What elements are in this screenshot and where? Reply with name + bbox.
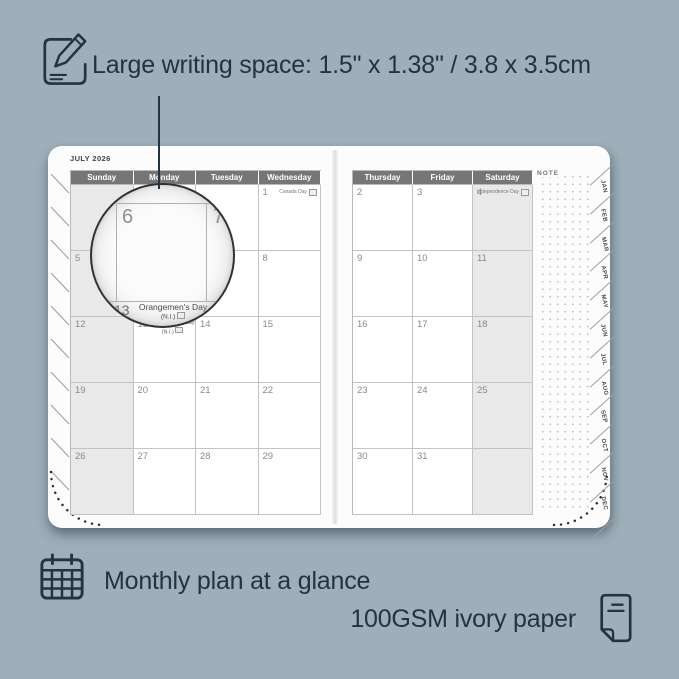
month-tab-label: OCT xyxy=(600,438,609,453)
magnified-day-7: 7 xyxy=(213,206,224,229)
day-cell: 19 xyxy=(71,383,134,449)
day-number: 26 xyxy=(75,451,86,462)
day-cell: 29 xyxy=(259,449,322,515)
month-tab-label: DEC xyxy=(600,496,609,511)
day-number: 27 xyxy=(138,451,149,462)
day-number: 2 xyxy=(357,187,362,198)
day-cell: 23 xyxy=(353,383,413,449)
day-number: 23 xyxy=(357,385,368,396)
month-title: JULY 2026 xyxy=(70,154,111,163)
day-header: Wednesday xyxy=(259,171,322,185)
day-cell: 10 xyxy=(413,251,473,317)
day-header: Tuesday xyxy=(196,171,259,185)
day-number: 5 xyxy=(75,253,80,264)
month-tab-apr: APR xyxy=(593,260,611,289)
day-cell: 1Canada Day xyxy=(259,185,322,251)
day-cell: 17 xyxy=(413,317,473,383)
month-tab-label: JAN xyxy=(599,179,608,193)
calendar-grid-right: ThursdayFridaySaturday234Independence Da… xyxy=(352,170,533,515)
book-spine-seam xyxy=(332,150,338,524)
day-number: 11 xyxy=(477,253,487,264)
day-cell: 30 xyxy=(353,449,413,515)
day-number: 15 xyxy=(263,319,274,330)
day-cell: 24 xyxy=(413,383,473,449)
day-cell: 21 xyxy=(196,383,259,449)
month-tab-label: NOV xyxy=(600,467,609,482)
magnified-day-13: 13 xyxy=(114,302,130,318)
day-cell: 2 xyxy=(353,185,413,251)
holiday-label: Independence Day xyxy=(477,189,529,196)
day-number: 28 xyxy=(200,451,211,462)
month-tab-label: APR xyxy=(600,266,609,281)
day-number: 31 xyxy=(417,451,428,462)
day-cell: 31 xyxy=(413,449,473,515)
flag-icon xyxy=(309,189,317,196)
paper-icon xyxy=(596,592,634,644)
day-cell: 8 xyxy=(259,251,322,317)
magnifier-circle: 6 7 13 Orangemen's Day (N.I.) xyxy=(90,183,235,328)
day-cell: 20 xyxy=(134,383,197,449)
day-number: 19 xyxy=(75,385,86,396)
month-tab-label: MAY xyxy=(600,294,609,309)
note-column: NOTE xyxy=(536,170,593,508)
day-cell: 22 xyxy=(259,383,322,449)
magnified-day-6: 6 xyxy=(122,206,133,229)
planner-infographic: Large writing space: 1.5" x 1.38" / 3.8 … xyxy=(0,0,679,679)
month-tab-oct: OCT xyxy=(593,433,611,462)
day-cell: 4Independence Day xyxy=(473,185,533,251)
day-header: Friday xyxy=(413,171,473,185)
day-cell: 3 xyxy=(413,185,473,251)
top-annotation: Large writing space: 1.5" x 1.38" / 3.8 … xyxy=(92,51,591,80)
pencil-note-icon xyxy=(40,32,90,89)
day-number: 18 xyxy=(477,319,488,330)
month-tab-label: JUN xyxy=(599,323,608,337)
month-tab-aug: AUG xyxy=(593,376,611,405)
day-cell: 25 xyxy=(473,383,533,449)
mag-cell-right-line xyxy=(206,203,207,301)
month-tab-label: FEB xyxy=(599,208,608,222)
planner-book: JULY 2026 SundayMondayTuesdayWednesday1C… xyxy=(48,146,610,528)
day-cell: 15 xyxy=(259,317,322,383)
mag-cell-bottom-line xyxy=(92,301,233,302)
day-cell: 27 xyxy=(134,449,197,515)
month-tab-label: AUG xyxy=(600,380,609,395)
day-header: Saturday xyxy=(473,171,533,185)
day-cell: 14 xyxy=(196,317,259,383)
month-tab-may: MAY xyxy=(593,289,611,318)
day-cell: 11 xyxy=(473,251,533,317)
holiday-label: Canada Day xyxy=(279,189,317,196)
month-tab-label: MAR xyxy=(600,236,609,252)
month-tab-dec: DEC xyxy=(593,491,611,520)
day-number: 22 xyxy=(263,385,274,396)
month-tabs: JANFEBMARAPRMAYJUNJULAUGSEPOCTNOVDEC xyxy=(593,174,611,520)
calendar-icon xyxy=(39,552,85,602)
day-number: 17 xyxy=(417,319,428,330)
day-number: 1 xyxy=(263,187,268,198)
day-cell: 26 xyxy=(71,449,134,515)
flag-icon xyxy=(175,327,183,334)
day-header: Thursday xyxy=(353,171,413,185)
day-number: 9 xyxy=(357,253,362,264)
day-cell: 16 xyxy=(353,317,413,383)
day-cell: 12 xyxy=(71,317,134,383)
day-number: 10 xyxy=(417,253,428,264)
day-cell: 9 xyxy=(353,251,413,317)
bottom-left-annotation: Monthly plan at a glance xyxy=(104,567,370,596)
pointer-line xyxy=(158,96,160,189)
day-cell xyxy=(473,449,533,515)
flag-icon xyxy=(177,312,185,319)
day-cell: 18 xyxy=(473,317,533,383)
mag-cell-left-line xyxy=(116,203,117,301)
day-number: 29 xyxy=(263,451,274,462)
day-number: 25 xyxy=(477,385,488,396)
month-tab-mar: MAR xyxy=(593,232,611,261)
day-header: Sunday xyxy=(71,171,134,185)
magnified-holiday: Orangemen's Day (N.I.) xyxy=(128,303,218,322)
day-number: 16 xyxy=(357,319,368,330)
note-label: NOTE xyxy=(537,170,561,177)
day-number: 20 xyxy=(138,385,149,396)
day-cell: 28 xyxy=(196,449,259,515)
day-number: 8 xyxy=(263,253,268,264)
day-number: 30 xyxy=(357,451,368,462)
month-tab-label: JUL xyxy=(599,353,607,366)
month-tab-sep: SEP xyxy=(593,404,611,433)
mag-cell-top-line xyxy=(116,203,233,204)
day-number: 21 xyxy=(200,385,211,396)
day-number: 12 xyxy=(75,319,86,330)
day-number: 3 xyxy=(417,187,422,198)
month-tab-label: SEP xyxy=(599,410,608,424)
day-number: 24 xyxy=(417,385,428,396)
bottom-right-annotation: 100GSM ivory paper xyxy=(350,605,576,634)
flag-icon xyxy=(521,189,529,196)
